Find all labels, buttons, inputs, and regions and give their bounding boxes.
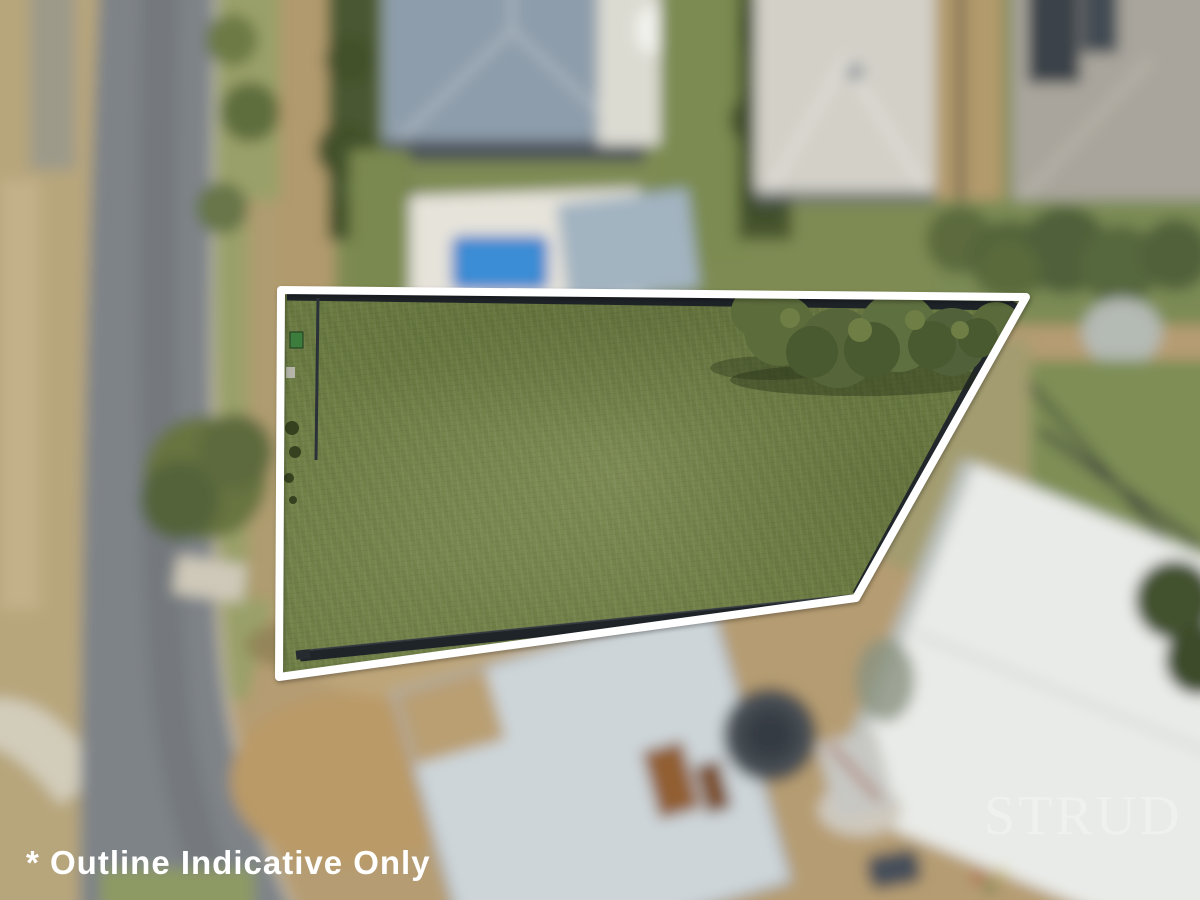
aerial-photo: * Outline Indicative Only STRUD bbox=[0, 0, 1200, 900]
property-outline bbox=[0, 0, 1200, 900]
outline-polygon bbox=[279, 290, 1026, 677]
watermark: STRUD bbox=[984, 788, 1183, 844]
caption-disclaimer: * Outline Indicative Only bbox=[26, 846, 431, 879]
